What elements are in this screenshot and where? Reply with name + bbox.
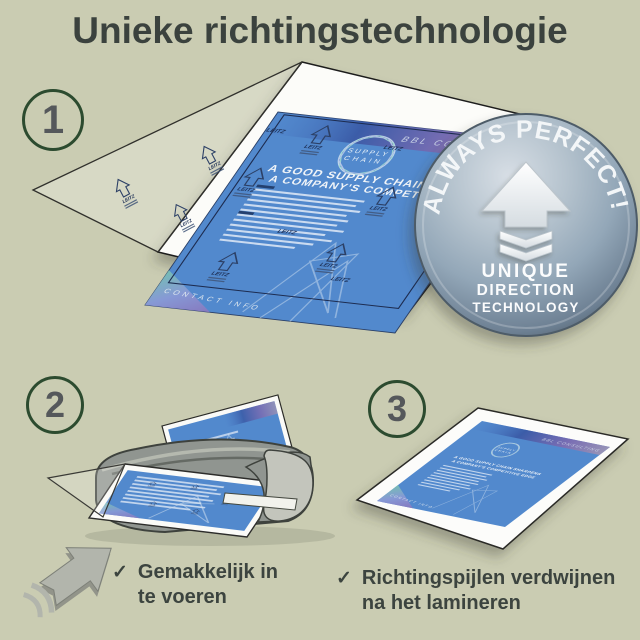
illustration-canvas: LEITZ LEITZ SUPPLY CHAIN <box>0 0 640 640</box>
check-icon: ✓ <box>112 560 128 610</box>
step-2-marker: 2 <box>26 376 84 434</box>
laminator-end-cap <box>264 450 313 521</box>
badge-label-unique: UNIQUE <box>482 261 571 282</box>
caption-arrows-disappear-text: Richtingspijlen verdwijnen na het lamine… <box>362 566 615 616</box>
step-3-marker: 3 <box>368 380 426 438</box>
page-title: Unieke richtingstechnologie <box>0 10 640 52</box>
badge-label-technology: TECHNOLOGY <box>472 300 579 315</box>
caption-easy-feed-text: Gemakkelijk in te voeren <box>138 560 278 610</box>
caption-arrows-disappear: ✓ Richtingspijlen verdwijnen na het lami… <box>336 566 615 616</box>
badge-label-direction: DIRECTION <box>477 282 576 299</box>
product-infographic: Unieke richtingstechnologie <box>0 0 640 640</box>
always-perfect-badge: ALWAYS PERFECT! UNIQUE DIRECTION TECHNOL… <box>415 114 637 336</box>
step-3-number: 3 <box>387 388 407 430</box>
caption-arrows-line2: na het lamineren <box>362 592 521 614</box>
step-1-number: 1 <box>42 98 64 143</box>
caption-easy-feed-line1: Gemakkelijk in <box>138 561 278 583</box>
step-1-marker: 1 <box>22 89 84 151</box>
check-icon: ✓ <box>336 566 352 616</box>
caption-arrows-line1: Richtingspijlen verdwijnen <box>362 567 615 589</box>
caption-easy-feed-line2: te voeren <box>138 586 227 608</box>
step-2-number: 2 <box>45 384 65 426</box>
caption-easy-feed: ✓ Gemakkelijk in te voeren <box>112 560 278 610</box>
